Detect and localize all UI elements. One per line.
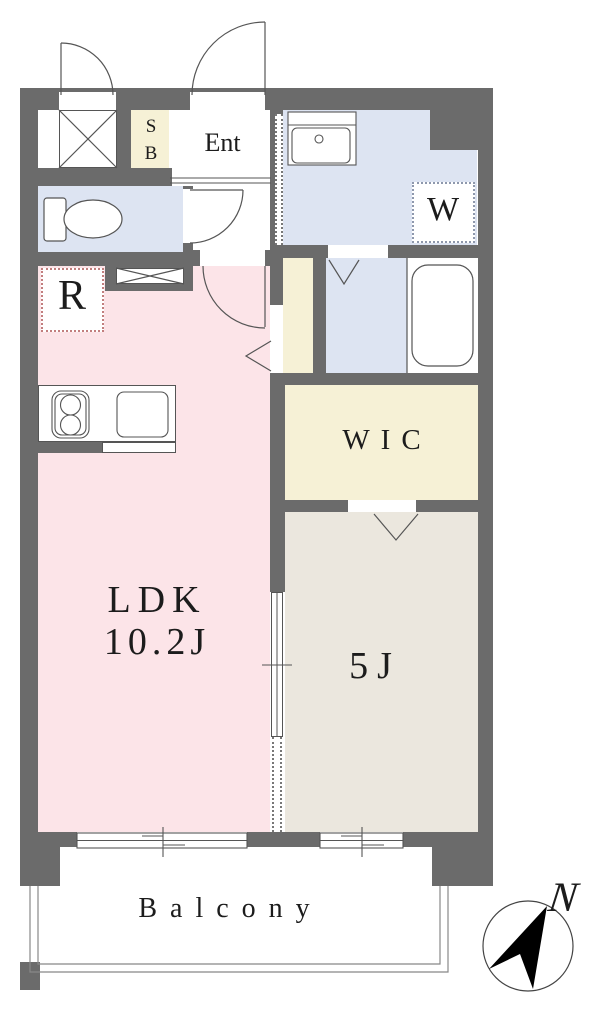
washroom-sink — [288, 112, 356, 165]
floorplan: Ent SB W R WIC LDK 10.2J 5J Balcony N — [0, 0, 605, 1024]
label-refrigerator: R — [42, 272, 102, 320]
label-washer: W — [413, 191, 473, 229]
label-balcony: Balcony — [58, 893, 403, 925]
label-ent: Ent — [180, 128, 265, 158]
bathtub — [407, 258, 473, 373]
storage-opening-mark — [246, 341, 271, 371]
window-ldk — [77, 827, 247, 857]
toilet-door-swing — [190, 190, 243, 243]
label-wic: WIC — [285, 424, 478, 457]
kitchen-sink-icon — [117, 392, 168, 437]
stove-icon — [52, 391, 89, 438]
window-bedroom — [320, 827, 403, 857]
label-ldk: LDK — [57, 578, 257, 622]
niche-x-icon — [116, 268, 184, 284]
linework-overlay — [0, 0, 605, 1024]
label-bedroom-size: 5J — [285, 644, 465, 688]
entrance-step-lines — [170, 178, 271, 183]
label-north: N — [535, 874, 592, 922]
label-ldk-size: 10.2J — [57, 620, 257, 664]
ldk-door-swing — [203, 266, 265, 328]
shaft-x-icon — [59, 110, 117, 168]
toilet-fixture — [44, 198, 122, 241]
shaft-door-swing — [61, 43, 113, 95]
entrance-door-swing — [192, 22, 265, 95]
bath-folding-door-mark — [329, 260, 359, 284]
label-sb: SB — [141, 114, 161, 167]
wic-opening-mark — [374, 514, 418, 540]
